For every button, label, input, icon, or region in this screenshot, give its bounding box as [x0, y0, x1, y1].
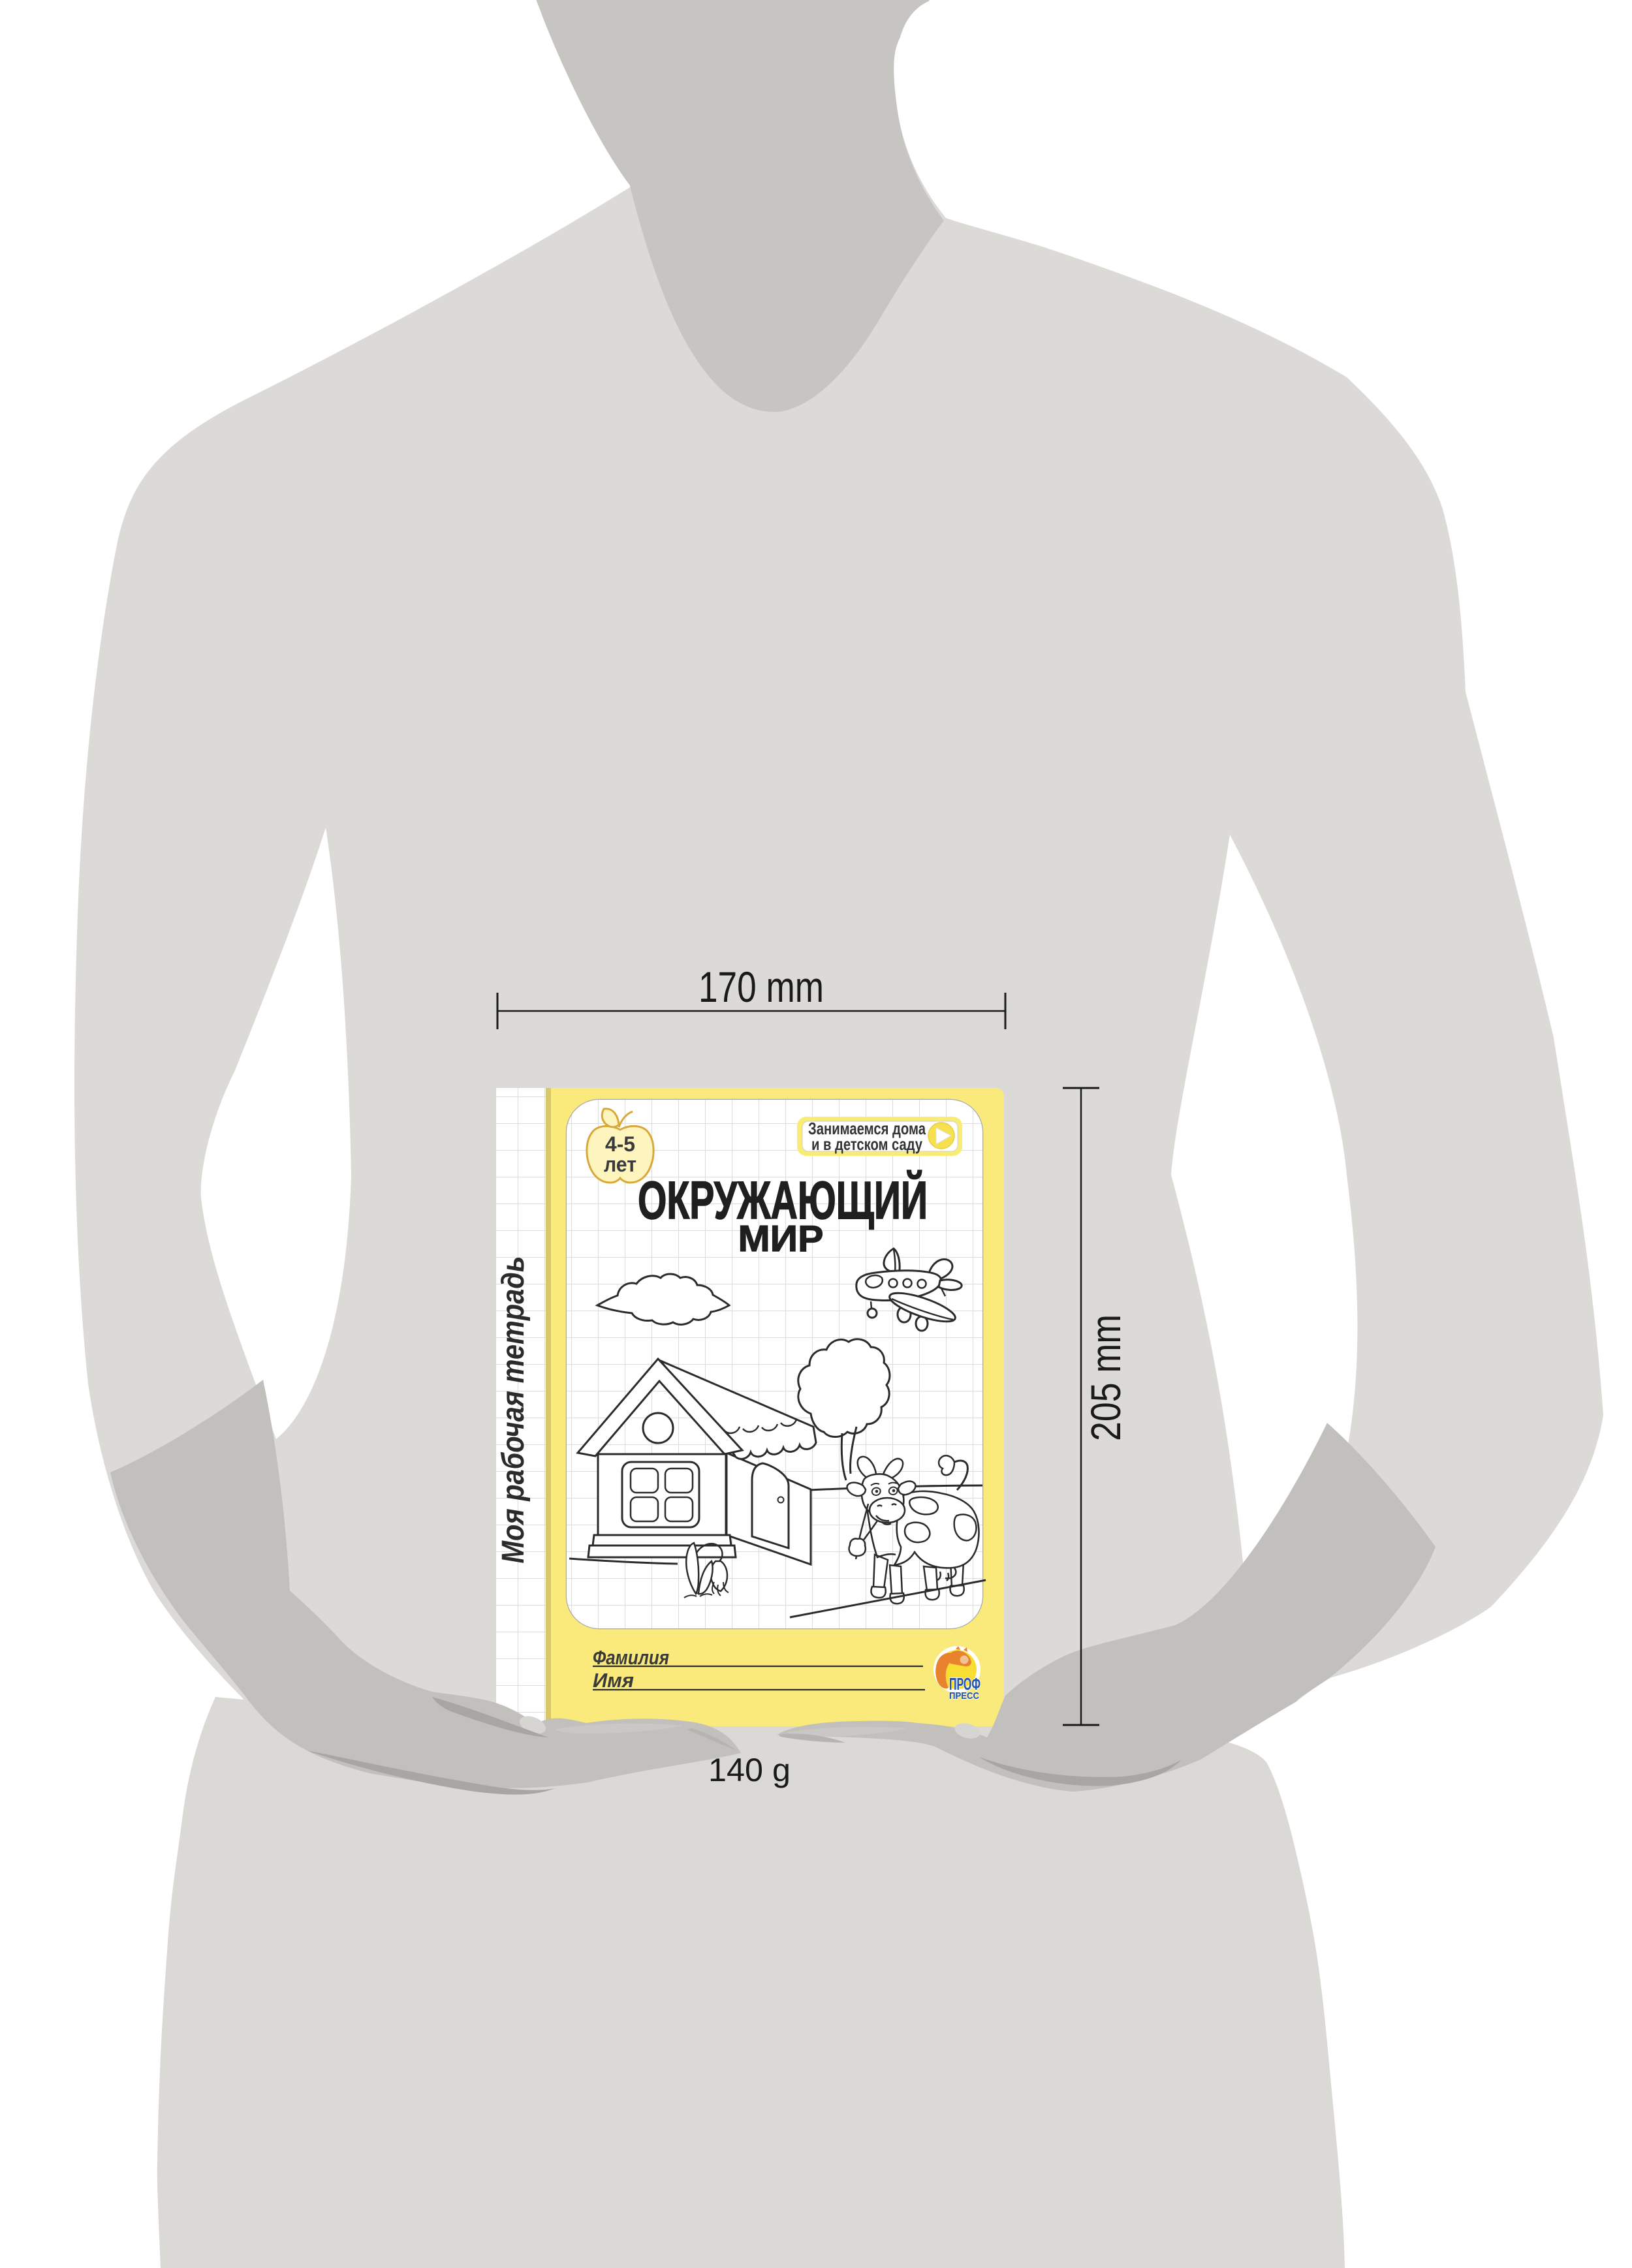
- svg-text:и в детском саду: и в детском саду: [811, 1134, 922, 1154]
- svg-text:140 g: 140 g: [708, 1752, 791, 1788]
- svg-text:170 mm: 170 mm: [698, 963, 824, 1011]
- svg-text:лет: лет: [604, 1153, 636, 1176]
- svg-text:Имя: Имя: [593, 1669, 634, 1692]
- svg-text:Фамилия: Фамилия: [593, 1646, 669, 1669]
- svg-text:Моя рабочая тетрадь: Моя рабочая тетрадь: [496, 1256, 531, 1564]
- svg-text:205 mm: 205 mm: [1082, 1314, 1129, 1441]
- svg-text:ПРЕСС: ПРЕСС: [949, 1690, 979, 1701]
- svg-text:МИР: МИР: [738, 1218, 824, 1260]
